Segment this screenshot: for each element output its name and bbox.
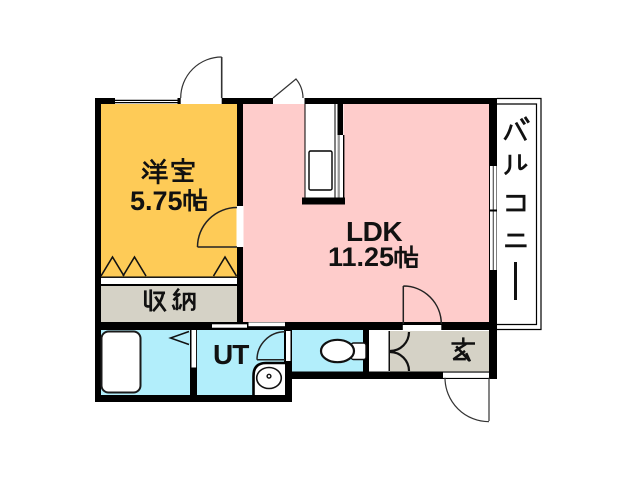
svg-text:UT: UT [213,339,249,370]
svg-text:11.25: 11.25 [328,242,394,272]
svg-text:5.75: 5.75 [130,186,183,216]
